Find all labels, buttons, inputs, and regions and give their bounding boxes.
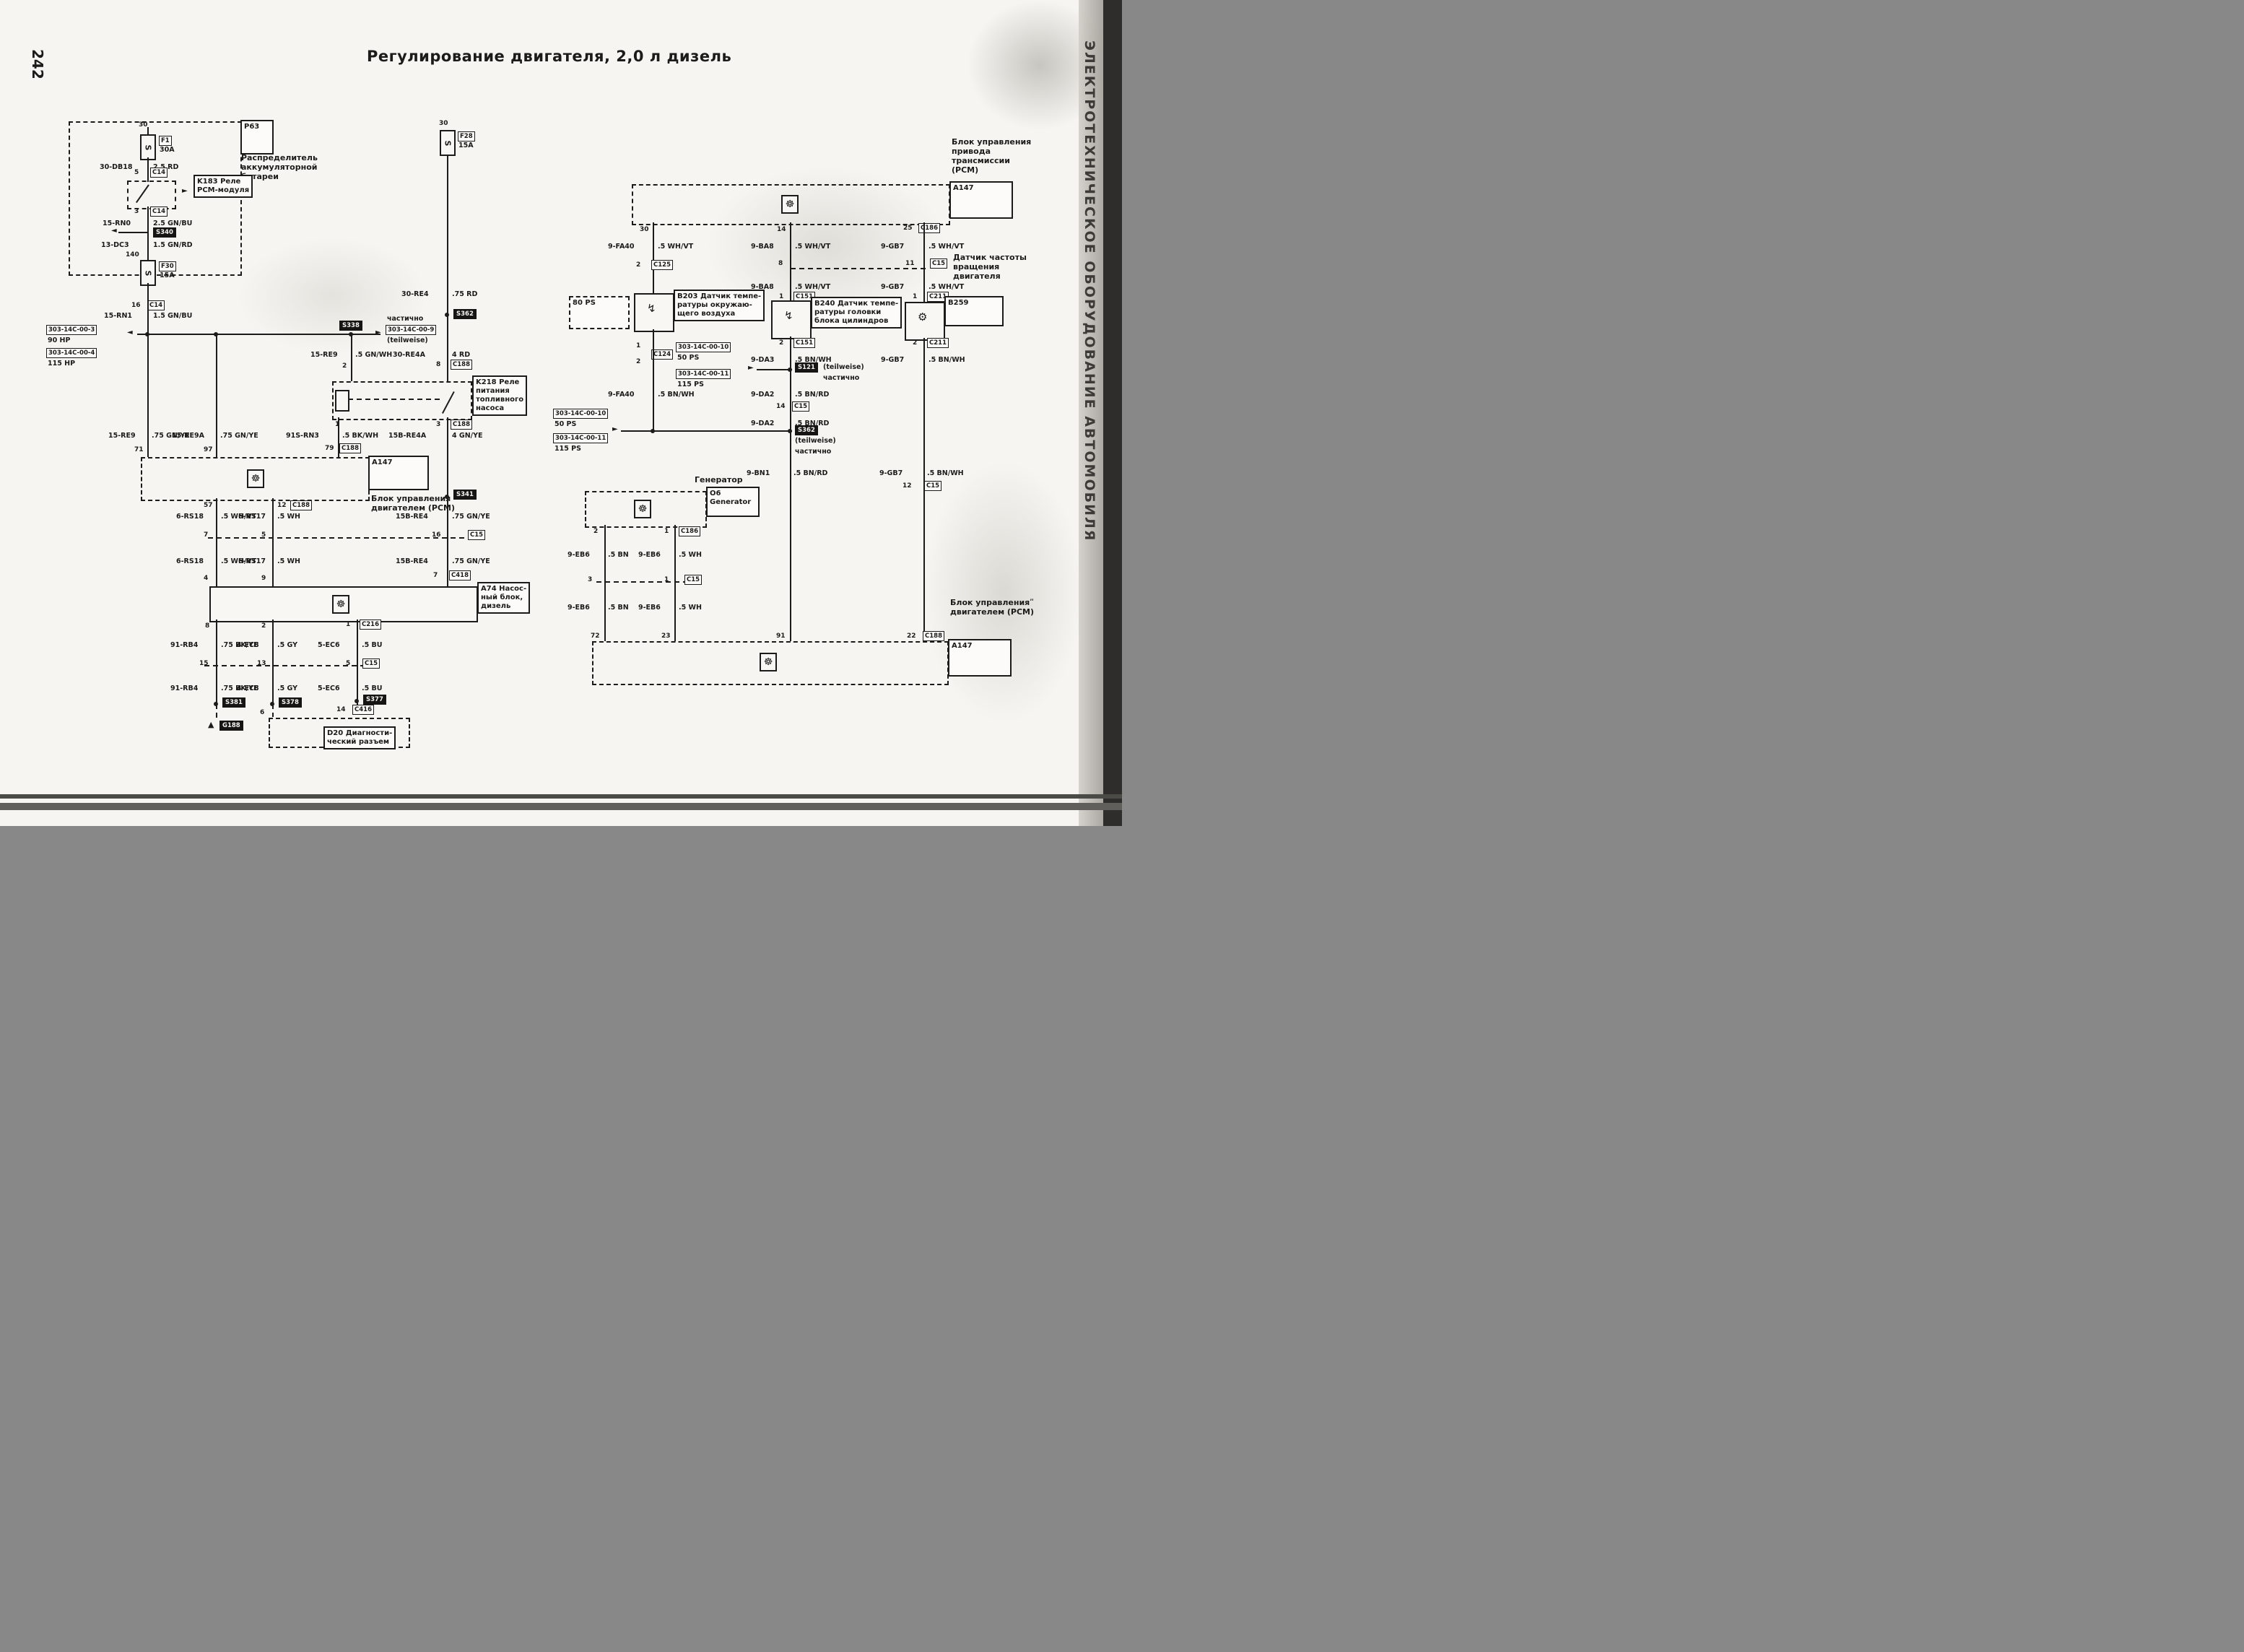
pin-number: 57 xyxy=(204,502,213,509)
wire-label: 4-EC8 xyxy=(237,641,259,649)
wire-label: .5 BN/WH xyxy=(929,356,965,364)
label-line: ный блок, xyxy=(481,594,526,602)
wire-label: .5 BN/RD xyxy=(793,469,827,477)
label-line: K183 Реле xyxy=(197,178,249,186)
fuse-f30: S xyxy=(140,260,156,286)
wire-label: .75 GN/YE xyxy=(452,513,490,521)
wire-label: .5 WH xyxy=(277,513,300,521)
wire-label: 15A xyxy=(160,271,175,279)
wire-label: (teilweise) xyxy=(823,363,864,371)
pin-number: 7 xyxy=(433,572,438,579)
connector-tag: C125 xyxy=(651,260,673,270)
pin-number: 97 xyxy=(204,446,213,453)
wire-segment xyxy=(272,498,274,586)
wire-segment xyxy=(118,232,147,233)
label-line: A147 xyxy=(953,184,1009,193)
pin-number: 2 xyxy=(261,622,266,630)
wire-label: .5 WH/VT xyxy=(795,283,830,291)
wire-label: .5 BN/WH xyxy=(658,391,695,399)
label-line: 80 PS xyxy=(573,299,626,308)
wire-segment xyxy=(653,329,654,432)
label-line: A147 xyxy=(372,458,425,467)
d20-label: D20 Диагности-ческий разъем xyxy=(323,726,396,749)
arrow-icon: ◄ xyxy=(111,227,117,235)
wire-label: .5 BK/WH xyxy=(342,432,378,440)
pin-number: 79 xyxy=(325,445,334,452)
fuse-f1-tag: F1 xyxy=(159,136,172,146)
pin-number: 3 xyxy=(588,576,592,583)
wire-segment xyxy=(923,222,925,302)
k218-label: K218 Релепитаниятопливногонасоса xyxy=(472,375,527,416)
wire-segment xyxy=(621,430,792,432)
junction-dot xyxy=(445,313,449,317)
wire-label: 4 RD xyxy=(452,351,470,359)
wire-label: 15-RE9 xyxy=(108,432,136,440)
wire-segment xyxy=(147,206,149,260)
wire-segment xyxy=(216,619,217,704)
generator-icon: ☸ xyxy=(634,500,651,518)
thermistor-icon-b203: ↯ xyxy=(647,303,656,314)
connector-tag: C14 xyxy=(147,300,165,310)
wire-segment xyxy=(216,498,217,586)
wire-label: 15B-RE4A xyxy=(388,432,426,440)
pin-number: 13 xyxy=(257,660,266,667)
label-line: A147 xyxy=(952,642,1008,651)
pin-number: 25 xyxy=(903,225,913,232)
label-line: A74 Насос- xyxy=(481,585,526,594)
connector-tag: C416 xyxy=(352,705,374,715)
arrow-icon: ► xyxy=(375,329,381,336)
wire-label: 4 GN/YE xyxy=(452,432,483,440)
pin-number: 91 xyxy=(776,632,786,640)
arrow-icon: ◄ xyxy=(127,329,133,336)
dashed-wire-segment xyxy=(596,581,692,583)
wire-label: .5 WH xyxy=(679,551,702,559)
wire-label: (teilweise) xyxy=(387,336,428,344)
pin-number: 15 xyxy=(199,660,209,667)
arrow-icon: ► xyxy=(182,188,188,195)
pin-number: 11 xyxy=(905,260,915,267)
pin-number: 2 xyxy=(342,362,347,370)
s338-splice: S338 xyxy=(339,321,362,331)
wire-label: 5-EC6 xyxy=(318,641,340,649)
label-line: привода xyxy=(952,147,1031,156)
page-edge-bar xyxy=(1103,0,1122,826)
sidebar-section-title: ЭЛЕКТРОТЕХНИЧЕСКОЕ ОБОРУДОВАНИЕ АВТОМОБИ… xyxy=(1082,40,1097,542)
wire-label: 30-DB18 xyxy=(100,163,133,171)
wire-segment xyxy=(447,155,448,381)
wire-segment xyxy=(216,334,217,457)
scanned-manual-page: 242 Регулирование двигателя, 2,0 л дизел… xyxy=(0,0,1122,826)
s381-splice: S381 xyxy=(222,697,245,708)
label-line: O6 xyxy=(710,490,756,498)
pin-number: 12 xyxy=(903,482,912,490)
dashed-wire-segment xyxy=(204,665,378,666)
s377-splice: S377 xyxy=(363,695,386,705)
pin-number: 5 xyxy=(261,531,266,539)
wire-label: 6-RS17 xyxy=(238,557,266,565)
wire-label: частично xyxy=(823,374,859,382)
wire-label: 6-RS18 xyxy=(176,513,204,521)
pin-number: 6 xyxy=(260,709,264,716)
connector-tag: C188 xyxy=(451,360,472,370)
wire-segment xyxy=(137,334,380,335)
label-line: ратуры головки xyxy=(814,308,898,317)
wire-label: 90 HP xyxy=(48,336,70,344)
wire-label: .5 WH/VT xyxy=(658,243,693,251)
wire-label: 6-RS18 xyxy=(176,557,204,565)
a147-tag-left: A147 xyxy=(368,456,429,490)
pin-number: 140 xyxy=(126,251,139,258)
label-line: двигателем (PCM) xyxy=(371,503,455,513)
ground-g188: ▲ xyxy=(208,721,214,729)
dashed-wire-segment xyxy=(272,704,274,717)
label-line: B203 Датчик темпе- xyxy=(677,292,761,301)
label-line: B240 Датчик темпе- xyxy=(814,300,898,308)
wire-label: 115 PS xyxy=(555,445,581,453)
speed-sensor-label: Датчик частотывращениядвигателя xyxy=(953,253,1027,281)
label-line: насоса xyxy=(476,404,523,413)
wire-label: 9-GB7 xyxy=(881,243,904,251)
connector-tag: C15 xyxy=(792,401,809,412)
wire-label: 2.5 GN/BU xyxy=(153,219,192,227)
junction-dot xyxy=(788,368,792,372)
wire-label: .75 RD xyxy=(452,290,477,298)
ref-303-14c-00-4: 303-14C-00-4 xyxy=(46,348,97,358)
connector-tag: C188 xyxy=(451,419,472,430)
label-line: блока цилиндров xyxy=(814,317,898,326)
pin-number: 14 xyxy=(336,706,346,713)
wire-label: .5 WH/VT xyxy=(795,243,830,251)
a74-label: A74 Насос-ный блок,дизель xyxy=(477,582,530,614)
s341-splice: S341 xyxy=(453,490,477,500)
ref-303-14c-00-9: 303-14C-00-9 xyxy=(386,325,436,335)
connector-tag: C188 xyxy=(923,631,944,641)
wire-label: .5 BN xyxy=(608,551,629,559)
a74-icon: ☸ xyxy=(332,595,349,614)
wire-segment xyxy=(351,334,352,381)
fuse-icon: S xyxy=(144,270,153,276)
wire-label: 30-RE4A xyxy=(393,351,425,359)
scan-bar xyxy=(0,794,1122,799)
junction-dot xyxy=(788,429,792,433)
connector-tag: C15 xyxy=(924,481,941,491)
connector-tag: C216 xyxy=(360,619,381,630)
label-line: Блок управленияʺ xyxy=(950,598,1034,607)
label-line: топливного xyxy=(476,396,523,404)
wire-label: .5 BN/RD xyxy=(795,391,829,399)
label-line: ческий разъем xyxy=(327,738,392,747)
pcm-left-label: Блок управлениядвигателем (PCM) xyxy=(371,494,455,513)
s340-splice: S340 xyxy=(153,227,176,238)
pin-number: 2 xyxy=(913,339,917,347)
connector-tag: C151 xyxy=(793,338,815,348)
label-line: дизель xyxy=(481,602,526,611)
pin-number: 23 xyxy=(661,632,671,640)
wire-label: 1.5 GN/BU xyxy=(153,312,192,320)
generator-label: Генератор xyxy=(695,475,743,484)
pin-number: 1 xyxy=(346,621,350,628)
wire-segment xyxy=(757,369,790,370)
connector-tag: C186 xyxy=(679,526,700,536)
dashed-wire-segment xyxy=(348,399,440,400)
wire-label: 30A xyxy=(160,146,175,154)
label-line: Датчик частоты xyxy=(953,253,1027,262)
pcm-icon: ☸ xyxy=(247,469,264,488)
wire-label: 6-RS17 xyxy=(238,513,266,521)
pin-number: 3 xyxy=(436,421,440,428)
fuse-f28-tag: F28 xyxy=(458,131,475,142)
wire-label: 5-EC6 xyxy=(318,684,340,692)
a147-tag-top: A147 xyxy=(949,181,1013,219)
scan-bar xyxy=(0,803,1122,810)
label-line: Блок управления xyxy=(371,494,455,503)
fuse-f30-tag: F30 xyxy=(159,261,176,271)
wire-label: .5 GY xyxy=(277,641,297,649)
fuse-icon: S xyxy=(144,144,153,150)
connector-tag: C418 xyxy=(449,570,471,581)
wire-label: 15-RE9 xyxy=(310,351,338,359)
wire-label: 15-RE9A xyxy=(172,432,204,440)
b259-tag: B259 xyxy=(944,296,1004,326)
relay-k218-box xyxy=(332,381,472,420)
wire-segment xyxy=(790,222,791,302)
connector-tag: C186 xyxy=(918,223,940,233)
pin-number: 2 xyxy=(636,358,640,365)
wire-label: 91S-RN3 xyxy=(286,432,319,440)
label-line: Генератор xyxy=(695,475,743,484)
label-line: P63 xyxy=(244,123,270,131)
label-line: Распределитель xyxy=(241,153,318,162)
connector-tag: C188 xyxy=(290,500,312,510)
pin-number: 72 xyxy=(591,632,600,640)
wire-label: .5 GN/WH xyxy=(355,351,392,359)
pin-number: 8 xyxy=(205,622,209,630)
b203-label: B203 Датчик темпе-ратуры окружаю-щего во… xyxy=(674,290,765,321)
fuse-icon: S xyxy=(443,140,453,146)
wire-label: 9-GB7 xyxy=(881,283,904,291)
wire-label: 9-BA8 xyxy=(751,243,774,251)
pin-number: 1 xyxy=(664,576,669,583)
wire-segment xyxy=(147,283,149,334)
wire-label: 13-DC3 xyxy=(101,241,129,249)
connector-tag: C15 xyxy=(362,658,380,669)
k183-label: K183 РелеРСМ-модуля xyxy=(193,175,253,198)
wire-label: 9-DA2 xyxy=(751,419,774,427)
wire-segment xyxy=(790,336,791,641)
ref-303-14c-00-10b: 303-14C-00-10 xyxy=(553,409,608,419)
label-line: K218 Реле xyxy=(476,378,523,387)
arrow-icon: ► xyxy=(612,426,618,433)
label-line: B259 xyxy=(948,299,1000,308)
wire-label: .5 BN xyxy=(608,604,629,612)
relay-k183-box xyxy=(127,181,176,209)
junction-dot xyxy=(445,495,449,499)
wire-label: 9-DA3 xyxy=(751,356,774,364)
pcm-trans-icon: ☸ xyxy=(781,195,799,214)
a147-tag-bottom: A147 xyxy=(948,639,1012,677)
c14-tag: C14 xyxy=(150,168,168,178)
label-line: щего воздуха xyxy=(677,310,761,318)
label-line: Generator xyxy=(710,498,756,507)
wire-label: .5 WH xyxy=(679,604,702,612)
ref-303-14c-00-10a: 303-14C-00-10 xyxy=(676,342,731,352)
wire-label: 30-RE4 xyxy=(401,290,429,298)
pin-number: 9 xyxy=(261,575,266,582)
s362-splice-left: S362 xyxy=(453,309,477,319)
speed-sensor-icon: ⚙ xyxy=(918,312,927,323)
pin-number: 3 xyxy=(134,208,139,215)
junction-dot xyxy=(651,429,655,433)
connector-tag: C211 xyxy=(927,338,949,348)
wire-segment xyxy=(357,619,358,702)
label-line: (РСМ) xyxy=(952,165,1031,175)
pin-number: 1 xyxy=(664,528,669,535)
b240-label: B240 Датчик темпе-ратуры головкиблока ци… xyxy=(811,297,902,329)
wire-label: частично xyxy=(387,315,423,323)
wire-label: 4-EC8 xyxy=(237,684,259,692)
wire-label: 9-EB6 xyxy=(567,604,590,612)
pin-number: 12 xyxy=(277,502,287,509)
wire-segment xyxy=(147,127,149,134)
connector-tag: C188 xyxy=(339,443,361,453)
wire-label: 9-BN1 xyxy=(747,469,770,477)
pin-number: 1 xyxy=(636,342,640,349)
pin-number: 16 xyxy=(432,531,441,539)
generator-tag: O6Generator xyxy=(706,487,760,517)
pin-number: 14 xyxy=(777,226,786,233)
wire-label: .5 BU xyxy=(362,641,382,649)
wire-segment xyxy=(674,525,676,641)
wire-label: .75 GN/YE xyxy=(220,432,258,440)
dashed-wire-segment xyxy=(791,268,928,269)
pin-number: 30 xyxy=(439,120,448,127)
wire-label: 115 PS xyxy=(677,381,704,388)
label-line: РСМ-модуля xyxy=(197,186,249,195)
connector-tag: C15 xyxy=(468,530,485,540)
g188-tag: G188 xyxy=(219,721,243,731)
pcm-bottom-label: Блок управленияʺдвигателем (РСМ) xyxy=(950,598,1034,617)
k218-coil xyxy=(335,390,349,412)
wire-label: 9-DA2 xyxy=(751,391,774,399)
wire-label: 50 PS xyxy=(677,354,699,362)
pin-number: 2 xyxy=(636,261,640,269)
label-line: питания xyxy=(476,387,523,396)
wire-label: 91-RB4 xyxy=(170,641,198,649)
wire-label: 50 PS xyxy=(555,420,576,428)
label-line: Блок управления xyxy=(952,137,1031,147)
label-line: двигателя xyxy=(953,271,1027,281)
wire-label: 15B-RE4 xyxy=(396,557,428,565)
pin-number: 30 xyxy=(640,226,649,233)
s378-splice: S378 xyxy=(279,697,302,708)
pin-number: 2 xyxy=(593,528,598,535)
wire-label: 9-GB7 xyxy=(879,469,903,477)
wire-segment xyxy=(147,157,149,182)
pin-number: 8 xyxy=(778,260,783,267)
wire-label: 15A xyxy=(458,142,474,149)
wire-label: .5 WH/VT xyxy=(929,283,964,291)
pin-number: 8 xyxy=(436,361,440,368)
ref-303-14c-00-11b: 303-14C-00-11 xyxy=(553,433,608,443)
label-line: аккумуляторной xyxy=(241,162,318,172)
wire-label: .5 WH/VT xyxy=(929,243,964,251)
connector-tag: C15 xyxy=(684,575,702,585)
label-line: D20 Диагности- xyxy=(327,729,392,738)
thermistor-icon-b240: ↯ xyxy=(784,310,793,321)
wire-label: .5 BN/WH xyxy=(927,469,964,477)
wire-label: (teilweise) xyxy=(795,437,836,445)
pin-number: 5 xyxy=(346,660,350,667)
arrow-icon: ► xyxy=(748,365,754,372)
connector-tag: C15 xyxy=(930,258,947,269)
pin-number: 22 xyxy=(907,632,916,640)
fuse-f1: S xyxy=(140,134,156,160)
wire-label: 9-EB6 xyxy=(567,551,590,559)
pin-number: 1 xyxy=(779,293,783,300)
wire-label: .75 GN/YE xyxy=(452,557,490,565)
label-line: двигателем (РСМ) xyxy=(950,607,1034,617)
pin-number: 5 xyxy=(134,169,139,176)
pin-number: 16 xyxy=(131,302,141,309)
connector-tag: C14 xyxy=(150,206,168,217)
wire-label: 15B-RE4 xyxy=(396,513,428,521)
pcm-trans-label: Блок управленияприводатрансмиссии(РСМ) xyxy=(952,137,1031,175)
ref-303-14c-00-11a: 303-14C-00-11 xyxy=(676,369,731,379)
wire-label: 9-GB7 xyxy=(881,356,904,364)
p63-tag: P63 xyxy=(240,120,274,155)
wire-segment xyxy=(272,619,274,704)
wire-label: 9-EB6 xyxy=(638,604,661,612)
wire-segment xyxy=(604,525,606,641)
dashed-wire-segment xyxy=(208,537,485,539)
wire-label: .5 GY xyxy=(277,684,297,692)
pin-number: 2 xyxy=(779,339,783,347)
connector-tag: C124 xyxy=(651,349,673,360)
wire-label: частично xyxy=(795,448,831,456)
ps80-box: 80 PS xyxy=(569,296,630,329)
pin-number: 14 xyxy=(776,403,786,410)
pin-number: 30 xyxy=(139,121,148,129)
dashed-wire-segment xyxy=(216,704,217,721)
wire-label: 91-RB4 xyxy=(170,684,198,692)
wire-label: 115 HP xyxy=(48,360,75,368)
label-line: ратуры окружаю- xyxy=(677,301,761,310)
s121-splice: S121 xyxy=(795,362,818,373)
wire-label: .5 BU xyxy=(362,684,382,692)
wire-segment xyxy=(653,222,654,295)
ref-303-14c-00-3: 303-14C-00-3 xyxy=(46,325,97,335)
wire-segment xyxy=(147,334,149,457)
s362-splice-right: S362 xyxy=(795,425,818,435)
pcm-bottom-icon: ☸ xyxy=(760,653,777,671)
label-line: трансмиссии xyxy=(952,156,1031,165)
wiring-diagram: P63Распределительаккумуляторнойбатареи30… xyxy=(0,0,1122,826)
wire-label: 9-FA40 xyxy=(608,391,635,399)
pin-number: 71 xyxy=(134,446,144,453)
pin-number: 4 xyxy=(204,575,208,582)
wire-label: 9-FA40 xyxy=(608,243,635,251)
wire-label: 15-RN1 xyxy=(104,312,132,320)
wire-label: 9-EB6 xyxy=(638,551,661,559)
pin-number: 7 xyxy=(204,531,208,539)
pin-number: 1 xyxy=(913,293,917,300)
wire-label: 1.5 GN/RD xyxy=(153,241,193,249)
fuse-f28: S xyxy=(440,130,456,156)
wire-label: .5 WH xyxy=(277,557,300,565)
label-line: вращения xyxy=(953,262,1027,271)
